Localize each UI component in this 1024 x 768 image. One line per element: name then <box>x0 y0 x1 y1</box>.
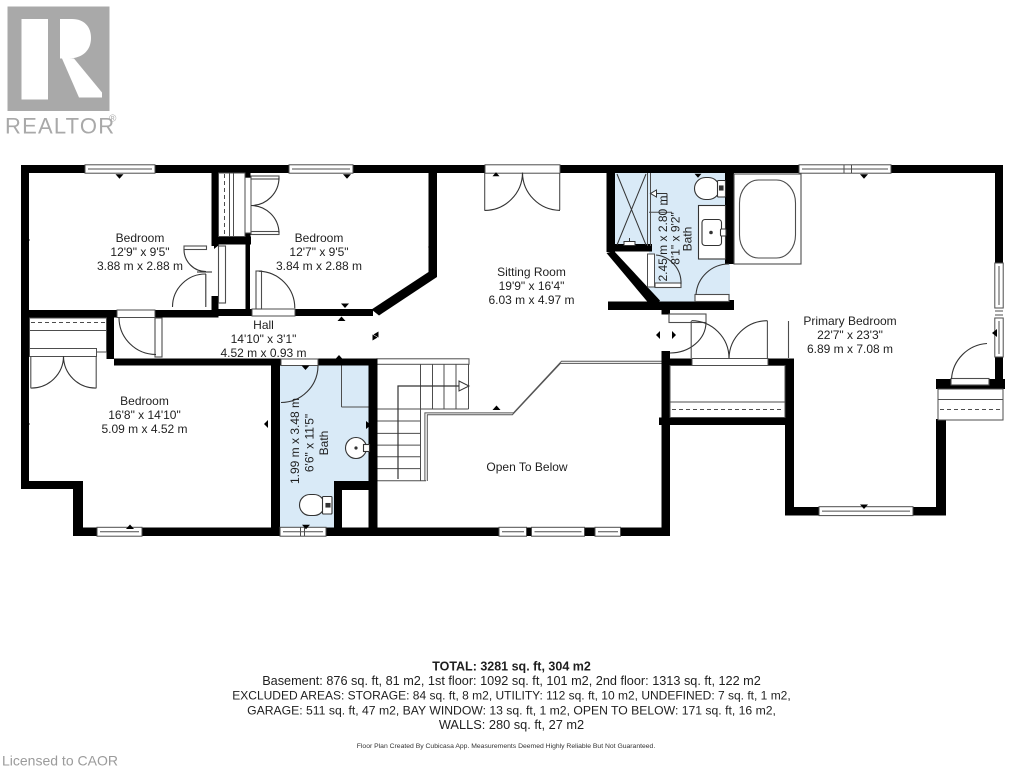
svg-text:5.09 m x 4.52 m: 5.09 m x 4.52 m <box>101 422 187 436</box>
svg-text:GARAGE: 511 sq. ft, 47 m2, BAY: GARAGE: 511 sq. ft, 47 m2, BAY WINDOW: 1… <box>247 703 776 717</box>
svg-text:1.99 m x 3.48 m: 1.99 m x 3.48 m <box>288 398 302 484</box>
svg-text:REALTOR: REALTOR <box>5 114 115 139</box>
svg-text:Hall: Hall <box>253 318 274 332</box>
svg-text:19'9" x 16'4": 19'9" x 16'4" <box>499 279 565 293</box>
svg-text:Basement: 876 sq. ft, 81 m2, 1: Basement: 876 sq. ft, 81 m2, 1st floor: … <box>262 674 761 688</box>
svg-text:6.03 m x 4.97 m: 6.03 m x 4.97 m <box>488 293 574 307</box>
svg-text:Bedroom: Bedroom <box>116 231 165 245</box>
svg-text:2.45 m x 2.80 m: 2.45 m x 2.80 m <box>656 195 670 281</box>
svg-text:Open To Below: Open To Below <box>486 460 567 474</box>
svg-text:Sitting Room: Sitting Room <box>497 265 566 279</box>
svg-text:Licensed to CAOR: Licensed to CAOR <box>2 753 118 768</box>
svg-text:Primary Bedroom: Primary Bedroom <box>803 314 896 328</box>
svg-text:8'1" x 9'2": 8'1" x 9'2" <box>669 212 683 264</box>
svg-text:16'8" x 14'10": 16'8" x 14'10" <box>108 408 181 422</box>
svg-text:3.88 m x 2.88 m: 3.88 m x 2.88 m <box>97 259 183 273</box>
svg-text:Bath: Bath <box>681 227 695 252</box>
svg-text:3.84 m x 2.88 m: 3.84 m x 2.88 m <box>276 259 362 273</box>
svg-text:14'10" x 3'1": 14'10" x 3'1" <box>231 332 297 346</box>
svg-text:6'6" x 11'5": 6'6" x 11'5" <box>303 414 317 472</box>
svg-text:®: ® <box>109 114 117 125</box>
svg-text:Bedroom: Bedroom <box>120 394 169 408</box>
svg-text:Bath: Bath <box>317 431 331 456</box>
svg-text:WALLS: 280 sq. ft, 27 m2: WALLS: 280 sq. ft, 27 m2 <box>439 717 584 732</box>
svg-text:Bedroom: Bedroom <box>295 231 344 245</box>
svg-text:12'9" x 9'5": 12'9" x 9'5" <box>110 245 169 259</box>
svg-text:TOTAL: 3281 sq. ft, 304 m2: TOTAL: 3281 sq. ft, 304 m2 <box>432 660 591 674</box>
svg-text:12'7" x 9'5": 12'7" x 9'5" <box>289 245 348 259</box>
svg-text:Floor Plan Created By Cubicasa: Floor Plan Created By Cubicasa App. Meas… <box>357 743 656 750</box>
svg-text:4.52 m x 0.93 m: 4.52 m x 0.93 m <box>220 346 306 360</box>
svg-text:6.89 m x 7.08 m: 6.89 m x 7.08 m <box>807 342 893 356</box>
svg-text:22'7" x 23'3": 22'7" x 23'3" <box>817 328 883 342</box>
svg-text:EXCLUDED AREAS: STORAGE: 84 sq: EXCLUDED AREAS: STORAGE: 84 sq. ft, 8 m2… <box>232 689 790 703</box>
